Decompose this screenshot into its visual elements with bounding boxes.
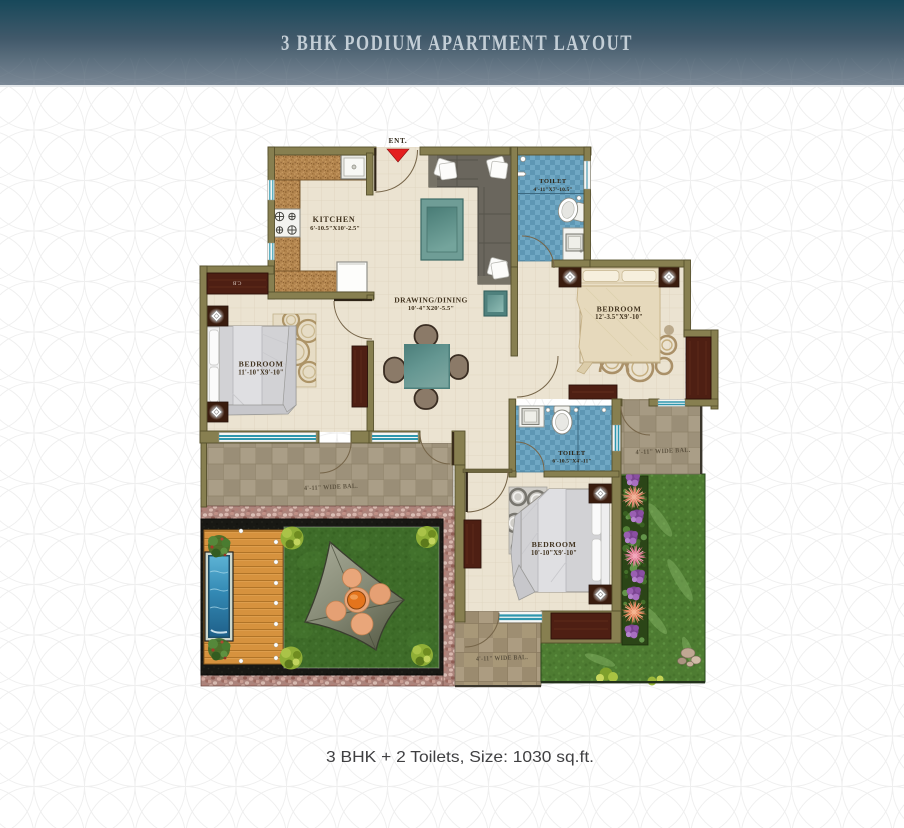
svg-text:3 BHK + 2 Toilets, Size: 1030: 3 BHK + 2 Toilets, Size: 1030 sq.ft. [326, 749, 594, 766]
svg-text:10'-4"X20'-5.5": 10'-4"X20'-5.5" [408, 305, 454, 312]
svg-text:KITCHEN: KITCHEN [313, 215, 356, 224]
svg-text:BEDROOM: BEDROOM [239, 360, 284, 369]
svg-text:TOILET: TOILET [558, 450, 586, 457]
svg-text:TOILET: TOILET [539, 178, 567, 185]
svg-text:4'-11"X7'-10.5": 4'-11"X7'-10.5" [533, 187, 572, 193]
svg-text:6'-10.5"X4'-11": 6'-10.5"X4'-11" [552, 459, 591, 465]
svg-text:ENT.: ENT. [389, 137, 408, 145]
svg-text:C.B: C.B [232, 280, 241, 286]
svg-text:12'-3.5"X9'-10": 12'-3.5"X9'-10" [595, 314, 643, 321]
svg-text:BEDROOM: BEDROOM [597, 305, 642, 314]
svg-text:10'-10"X9'-10": 10'-10"X9'-10" [531, 550, 577, 557]
svg-text:DRAWING/DINING: DRAWING/DINING [394, 296, 468, 305]
svg-text:11'-10"X9'-10": 11'-10"X9'-10" [238, 370, 284, 377]
svg-text:6'-10.5"X10'-2.5": 6'-10.5"X10'-2.5" [310, 225, 360, 232]
svg-text:BEDROOM: BEDROOM [532, 540, 577, 549]
svg-text:3 BHK PODIUM APARTMENT LAYOUT: 3 BHK PODIUM APARTMENT LAYOUT [281, 30, 633, 55]
